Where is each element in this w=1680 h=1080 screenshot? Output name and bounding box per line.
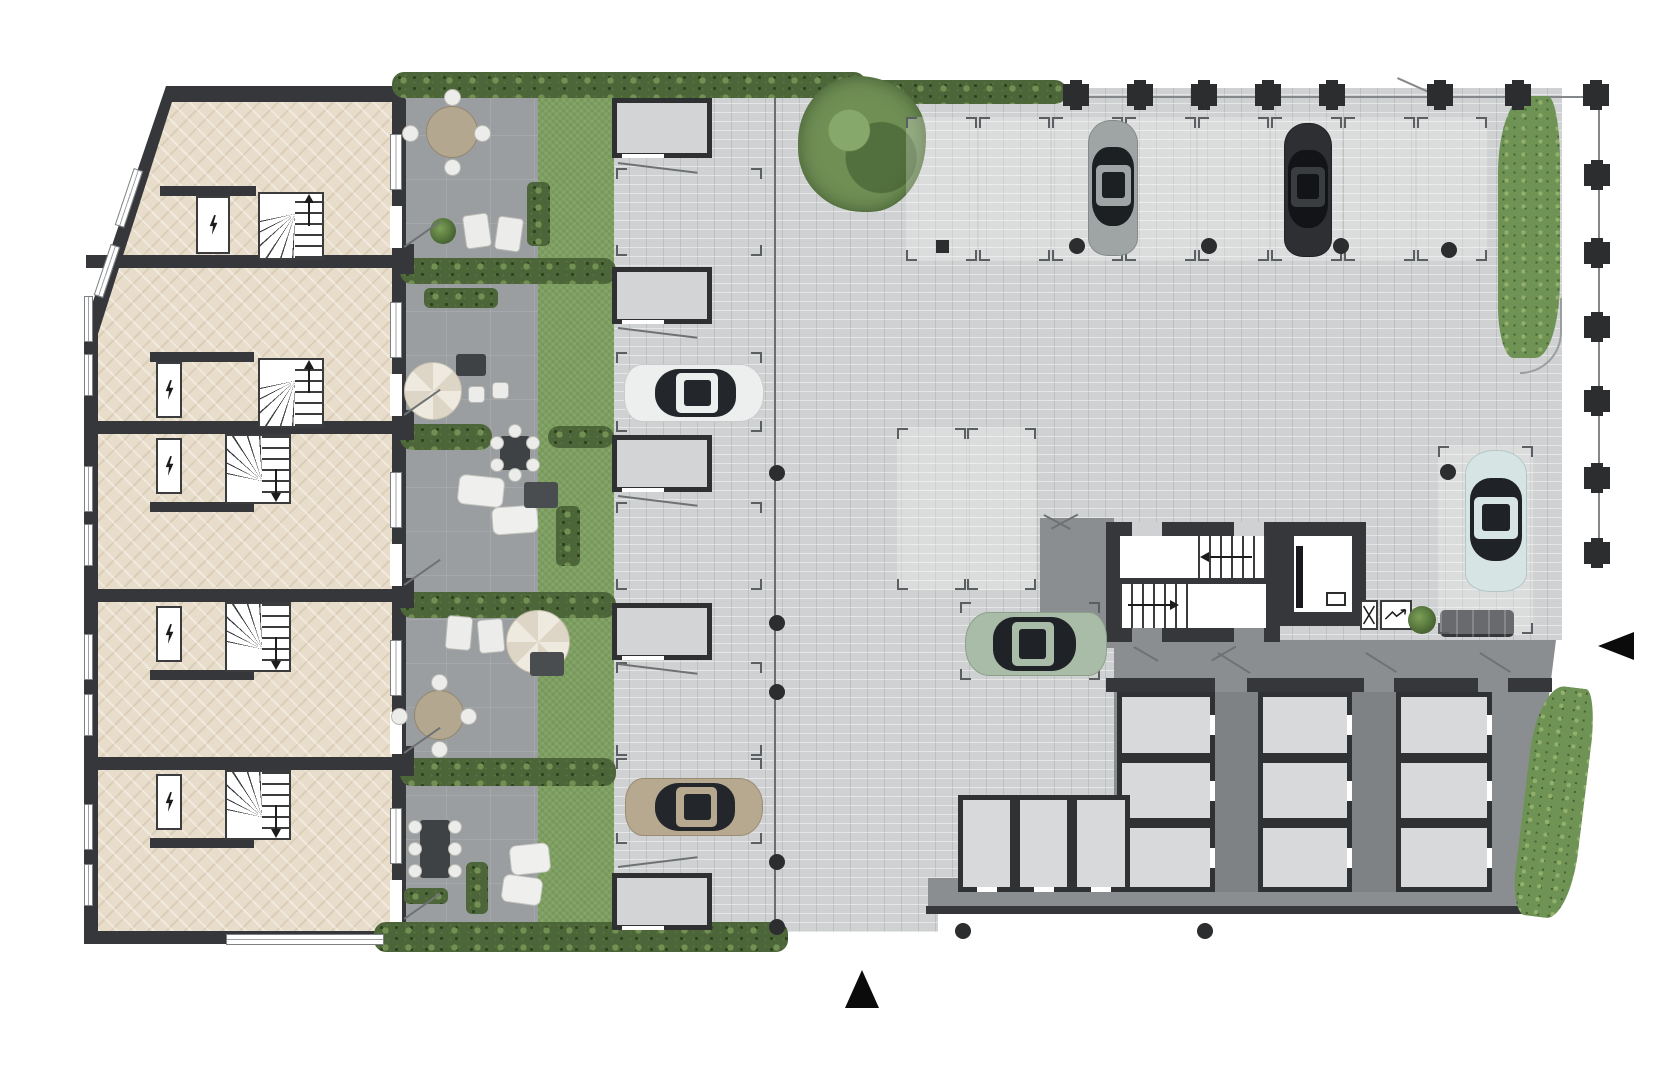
unit-2-stair-fan [260,381,295,426]
garden-sofa [457,474,506,509]
unit-4-stair-head [271,661,281,670]
shed-door [622,488,664,492]
parasol [404,362,462,420]
structural-column [1584,164,1610,186]
unit-2-garden-door [390,374,402,416]
chair [490,458,504,472]
parking-space-marker [1417,250,1428,261]
parking-space-marker [1476,250,1487,261]
bollard [769,854,785,870]
garden-sofa [500,873,544,906]
chair [508,468,522,482]
shed-door [622,926,664,930]
unit-3-stair-fan [227,436,262,481]
parking-space-marker [979,117,990,128]
parking-space-marker [616,168,627,179]
parking-space-marker [751,745,762,756]
stair-arrow-upper-stem [1210,556,1252,558]
parking-space [967,428,1036,590]
storage-entrance-gap [1364,678,1394,692]
window [84,524,93,566]
grass-strip [1498,96,1560,358]
structural-column [1584,542,1610,564]
parking-space-marker [616,502,627,513]
planter-box [424,288,498,308]
storage-shed [612,873,712,930]
parking-space-marker [967,428,978,439]
storage-room [1117,758,1215,823]
window [84,634,93,680]
parking-space [897,428,966,590]
structural-column [1319,84,1345,106]
parking-space-marker [1404,117,1415,128]
storage-room [1117,692,1215,758]
storage-room [1258,823,1352,892]
car-green [965,612,1107,676]
storage-room-door [1091,887,1111,892]
parking-space-marker [751,245,762,256]
unit-5-stair-head [271,829,281,838]
hedge [400,592,616,618]
parking-space-marker [1344,117,1355,128]
storage-corridor [1352,692,1396,892]
bollard [769,615,785,631]
unit-divider-wall [86,255,402,268]
parking-space-marker [1198,117,1209,128]
car-gray [1088,120,1138,256]
unit-3-garden-door [390,544,402,586]
car-white [624,364,764,422]
bollard [1069,238,1085,254]
unit-5-winder-stair [225,770,291,840]
chair [460,708,477,725]
unit-divider-wall [86,757,402,770]
parking-space [979,117,1050,261]
stair-core-door-ne [1234,522,1264,536]
parking-space-marker [1438,446,1449,457]
parking-space-marker [616,745,627,756]
storage-block-bottom-wall [926,906,1523,914]
hedge [392,72,866,98]
dining-table [420,820,450,878]
round-table [426,106,478,158]
chair [526,458,540,472]
structural-column [1427,84,1453,106]
chair [474,125,491,142]
chair [444,159,461,176]
storage-room-door [1210,848,1215,868]
unit-1-closet-lightning-icon [196,196,230,254]
parking-space-marker [955,428,966,439]
window [84,296,93,342]
unit-3-stair-head [271,493,281,502]
planter-box [556,506,580,566]
structural-column [1584,242,1610,264]
parking-space-marker [1417,117,1428,128]
bollard [769,919,785,935]
lounge-chair [462,212,492,249]
meter-box [1380,600,1412,630]
parking-space-marker [1039,117,1050,128]
unit-4-garden-window [390,640,402,696]
elevator-door [1296,546,1303,608]
storage-shed [612,603,712,660]
parking-space-marker [1052,117,1063,128]
parking-space-marker [897,579,908,590]
bollard [955,923,971,939]
bollard [1201,238,1217,254]
parking-space [1417,117,1487,261]
parking-space-marker [751,758,762,769]
hedge [400,258,616,284]
parking-space-marker [1258,250,1269,261]
unit-1-stair-head [304,194,314,203]
storage-entrance-gap [1215,678,1247,692]
parking-space [1344,117,1415,261]
bollard [769,684,785,700]
stair-arrow-lower-stem [1128,604,1170,606]
car-tan [625,778,763,836]
chair [431,674,448,691]
bollard [769,465,785,481]
chair [408,820,422,834]
storage-entrance-gap [1478,678,1508,692]
unit-1-hall-wall [160,186,256,196]
chair [526,436,540,450]
storage-room [1117,823,1215,892]
shed-door [622,320,664,324]
chair [448,842,462,856]
chair [490,436,504,450]
unit-2-closet-lightning-icon [156,362,182,418]
structural-column [1584,390,1610,412]
storage-room-door [1210,781,1215,801]
hedge [400,758,616,786]
parking-space-marker [751,662,762,673]
storage-room-door [1034,887,1054,892]
unit-1-winder-stair [258,192,324,260]
parking-space-marker [751,168,762,179]
plant [430,218,456,244]
car-blue-sunroof [1482,504,1511,531]
chair [391,708,408,725]
car-black [1284,123,1332,257]
parking-space-marker [1025,428,1036,439]
outdoor-mat [524,482,558,508]
storage-room [1258,692,1352,758]
parking-space-marker [751,579,762,590]
chair [492,382,509,399]
car-white-sunroof [684,380,711,407]
storage-room [958,795,1015,892]
unit-4-winder-stair [225,602,291,672]
storage-room [1396,758,1492,823]
planter-box [466,862,488,914]
parking-space-marker [1438,623,1449,634]
unit-2-garden-window [390,302,402,358]
bollard [1441,242,1457,258]
parking-space-marker [1039,250,1050,261]
storage-shed [612,435,712,492]
unit-divider-wall [86,589,402,602]
lounge-chair [494,215,524,252]
chair [431,741,448,758]
structural-column [1583,84,1609,106]
elevator-counterweight-box [1326,592,1346,606]
car-blue [1465,450,1527,592]
unit-4-stair-fan [227,604,262,649]
stair-core-door-se [1234,628,1264,642]
parking-space-marker [966,117,977,128]
storage-room [1072,795,1130,892]
cover-bottom [938,914,1560,974]
car-tan-sunroof [684,794,710,821]
facade-pier [398,244,414,274]
unit-3-winder-stair [225,434,291,504]
window [84,694,93,736]
entrance-arrow-left [1598,632,1634,660]
bollard [1440,464,1456,480]
car-black-sunroof [1297,174,1319,199]
parking-space-marker [955,579,966,590]
parking-space-marker [616,245,627,256]
stair-arrow-lower-head [1170,600,1179,610]
unit-5-stair-fan [227,772,262,817]
chair [508,424,522,438]
storage-shed [612,267,712,324]
parking-space-marker [1404,250,1415,261]
storage-corridor [1215,692,1258,892]
outdoor-mat [530,652,564,676]
structural-column [1584,467,1610,489]
entrance-arrow-up [845,970,879,1008]
unit-5-garden-door [390,880,402,922]
parking-space-marker [1476,117,1487,128]
storage-room-door [1347,715,1352,735]
bollard [1197,923,1213,939]
unit-2-hall-wall [150,352,254,362]
parking-space-marker [897,428,908,439]
stair-arrow-upper-head [1200,552,1209,562]
unit-divider-wall [86,421,402,434]
parking-space-marker [1025,579,1036,590]
parking-space-marker [1185,117,1196,128]
small-table [456,354,486,376]
car-gray-sunroof [1102,172,1125,198]
planter-box [527,182,550,246]
hedge [374,922,788,952]
parking-space-marker [616,758,627,769]
post [936,240,949,253]
storage-room-door [1487,715,1492,735]
parking-space-marker [979,250,990,261]
lounge-chair [477,618,506,654]
parking-space-marker [906,117,917,128]
structural-column [1191,84,1217,106]
parking-space-marker [616,421,627,432]
shed-door [622,154,664,158]
unit-1-garden-window [390,134,402,190]
storage-room-door [1487,848,1492,868]
round-table [414,690,464,740]
chair [408,842,422,856]
parking-space-marker [1258,117,1269,128]
storage-shed [612,98,712,158]
unit-5-garden-window [390,808,402,864]
structural-column [1584,316,1610,338]
unit-3-closet-lightning-icon [156,438,182,494]
storage-room [1258,758,1352,823]
unit-3-garden-window [390,472,402,528]
storage-room [1396,823,1492,892]
unit-1-stair-fan [260,214,295,258]
parking-space-marker [751,352,762,363]
chair [408,864,422,878]
storage-room [1015,795,1072,892]
parking-space-marker [1271,250,1282,261]
storage-room-door [1487,781,1492,801]
unit-4-closet-lightning-icon [156,606,182,662]
garden-sofa [509,842,552,876]
lounge-chair [445,615,474,651]
structural-column [1255,84,1281,106]
parking-space-marker [751,502,762,513]
stair-core-door-sw [1132,628,1162,642]
window [226,934,384,945]
parking-space-marker [1185,250,1196,261]
window [84,466,93,512]
floor-plan-canvas [0,0,1680,1080]
storage-room-door [1347,781,1352,801]
structural-column [1063,84,1089,106]
parking-space-marker [966,250,977,261]
parking-space-marker [1522,623,1533,634]
shed-door [622,656,664,660]
bollard [1333,238,1349,254]
parking-space-marker [967,579,978,590]
storage-room-door [1210,715,1215,735]
window [84,354,93,396]
chair [468,386,485,403]
parking-space-marker [616,352,627,363]
unit-2-winder-stair [258,358,324,428]
window [84,804,93,850]
unit-1-garden-door [390,206,402,248]
window [84,864,93,906]
hedge [548,426,614,448]
unit-2-stair-head [304,360,314,369]
chair [448,820,462,834]
car-green-sunroof [1019,629,1046,658]
parking-space-marker [906,250,917,261]
parking-space-marker [1052,250,1063,261]
parking-space-marker [616,579,627,590]
stair-core-door-nw [1132,522,1162,536]
chair [448,864,462,878]
potted-plant [1408,606,1436,634]
parking-space-marker [751,421,762,432]
storage-room-door [1347,848,1352,868]
parking-space-marker [1331,117,1342,128]
structural-column [1505,84,1531,106]
vent-shaft-box [1360,600,1378,630]
aisle-boundary-line [774,95,776,931]
garden-sofa [491,504,539,535]
structural-column [1127,84,1153,106]
unit-5-closet-lightning-icon [156,774,182,830]
parking-space-marker [1271,117,1282,128]
storage-room-door [977,887,997,892]
storage-room [1396,692,1492,758]
